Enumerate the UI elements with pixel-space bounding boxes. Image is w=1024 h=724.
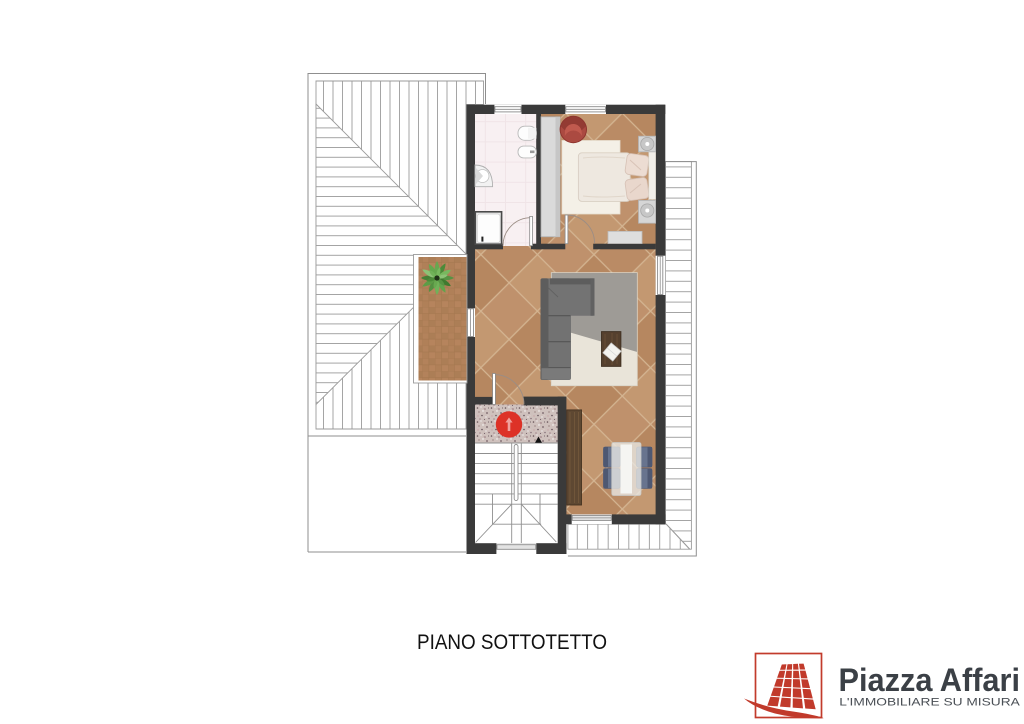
svg-text:L'IMMOBILIARE SU MISURA: L'IMMOBILIARE SU MISURA xyxy=(839,697,1021,709)
svg-text:Piazza Affari: Piazza Affari xyxy=(839,662,1021,698)
svg-text:PIANO SOTTOTETTO: PIANO SOTTOTETTO xyxy=(417,630,607,654)
